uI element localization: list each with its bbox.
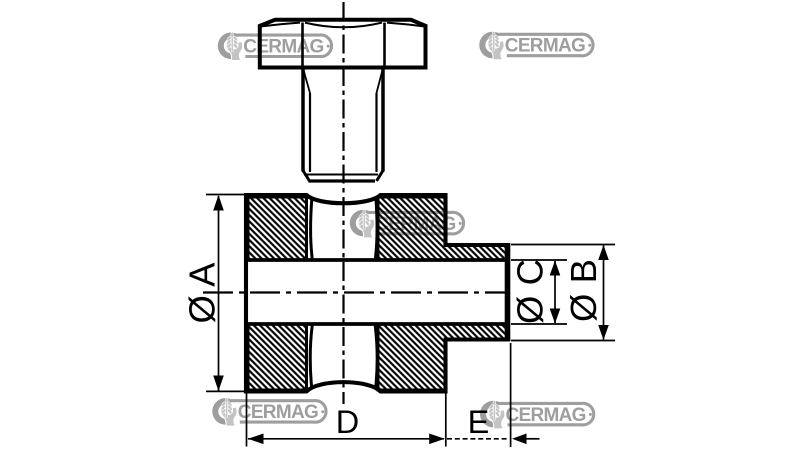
svg-text:D: D [336, 404, 359, 440]
svg-text:Ø A: Ø A [182, 262, 223, 324]
svg-text:Ø B: Ø B [563, 259, 604, 322]
svg-text:E: E [468, 404, 490, 440]
svg-text:Ø C: Ø C [510, 259, 551, 324]
